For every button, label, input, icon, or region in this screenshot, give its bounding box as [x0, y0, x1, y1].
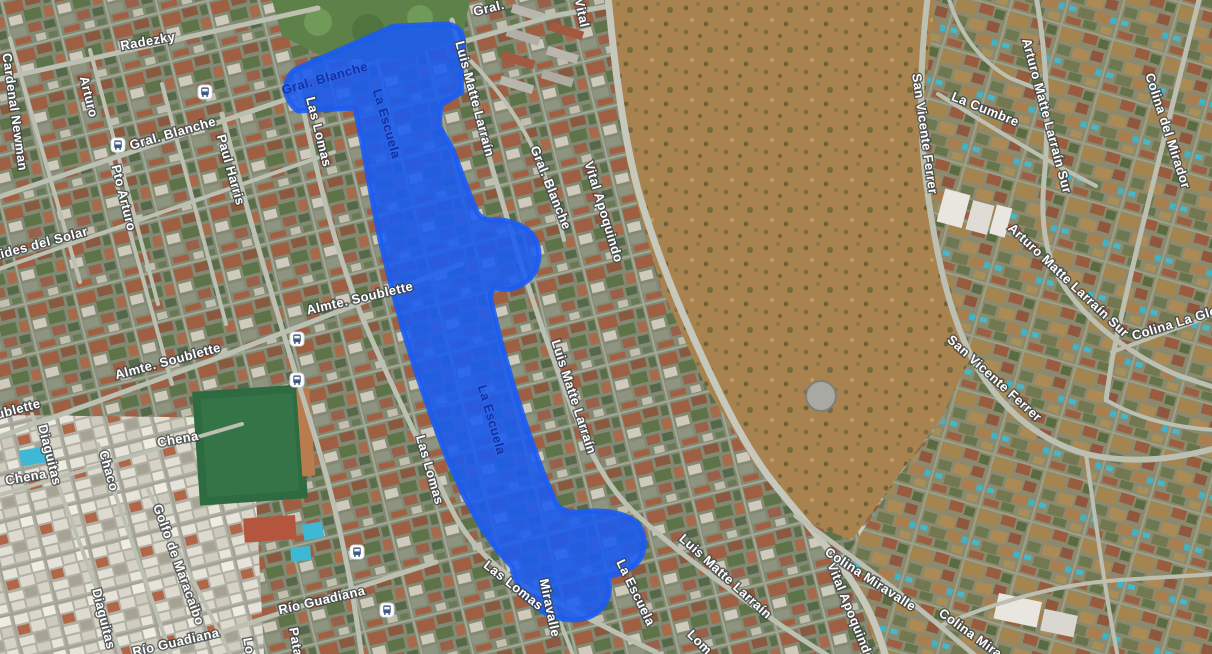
bus-stop-icon[interactable]: [111, 138, 125, 152]
bus-stop-icon[interactable]: [198, 85, 212, 99]
bus-stop-icon[interactable]: [290, 332, 304, 346]
bus-stop-icon[interactable]: [380, 603, 394, 617]
satellite-map-canvas[interactable]: RadezkyCardenal NewmanArturoGral. Blanch…: [0, 0, 1212, 654]
water-tank: [806, 381, 836, 411]
bus-stop-icon[interactable]: [350, 545, 364, 559]
pool: [302, 521, 324, 540]
street-label: Lo: [240, 636, 258, 654]
bus-stop-icon[interactable]: [290, 373, 304, 387]
